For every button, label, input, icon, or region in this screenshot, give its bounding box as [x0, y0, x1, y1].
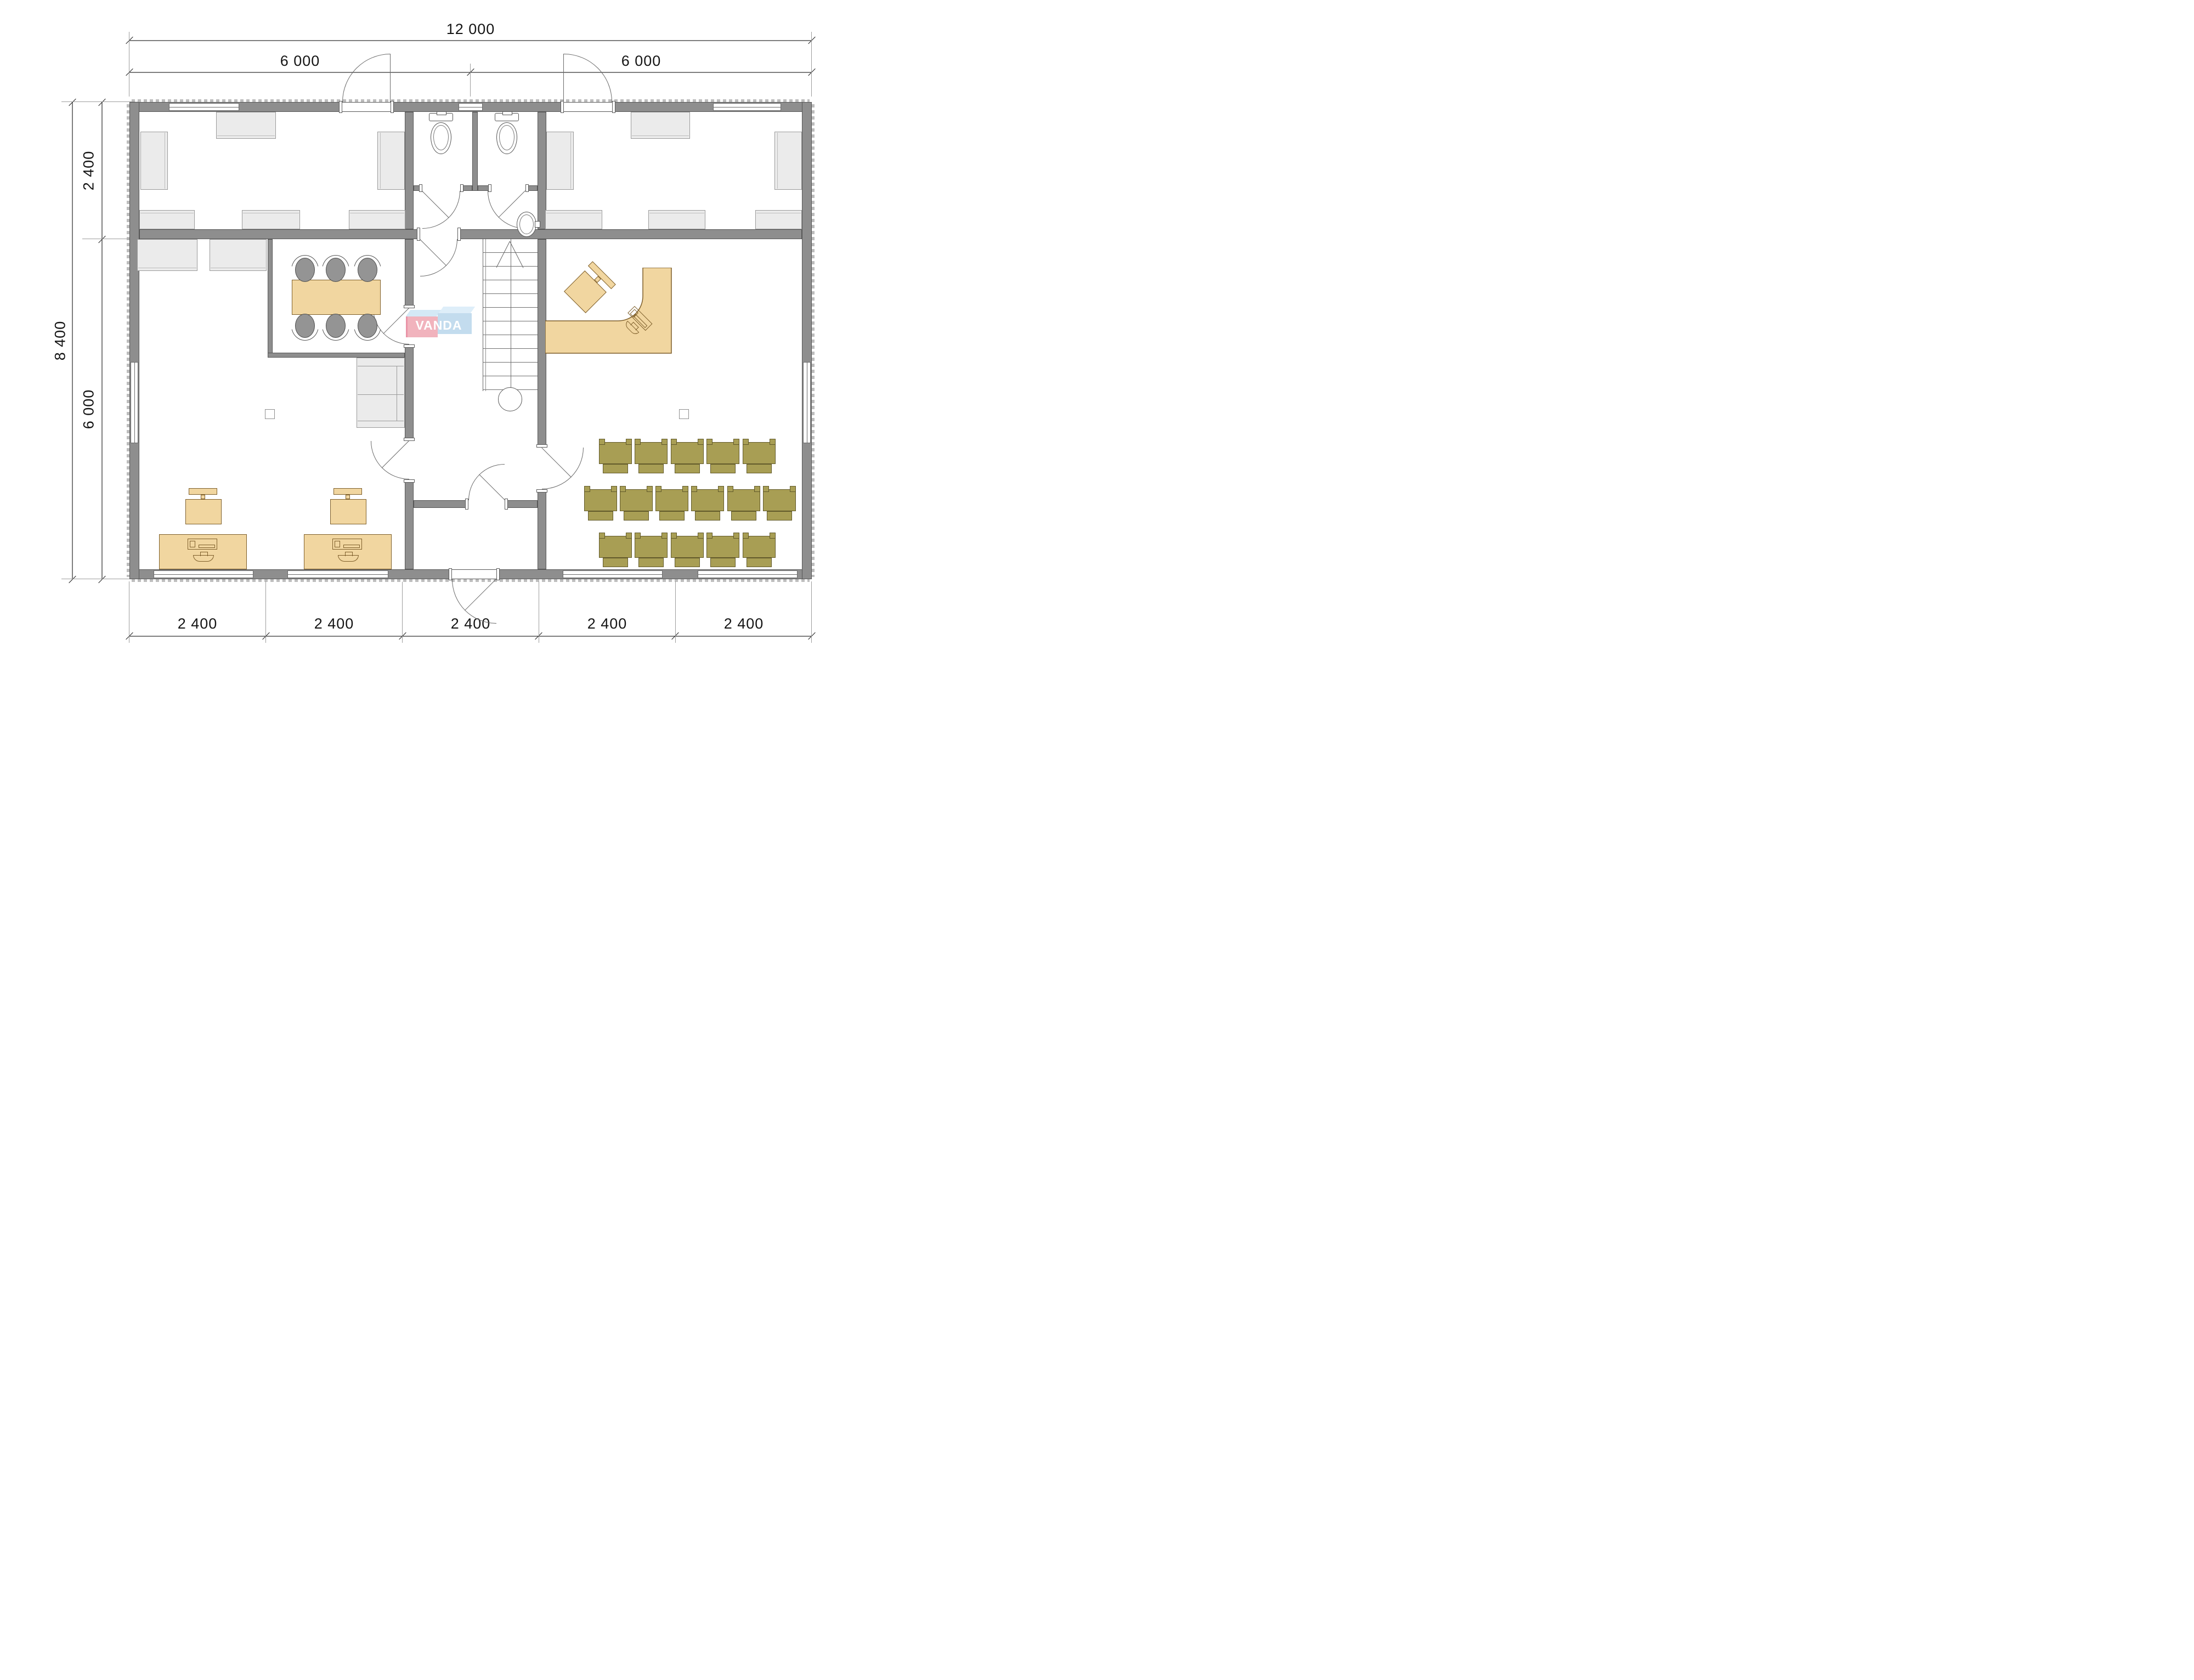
dimension-line-left-total: [72, 102, 73, 579]
meeting-chair: [355, 257, 380, 283]
door-jamb: [404, 479, 415, 483]
dimension-label-top-total: 12 000: [446, 21, 495, 38]
dimension-line-bottom: [129, 636, 812, 637]
extension-line: [265, 581, 266, 643]
meeting-room-wall-left: [268, 239, 273, 358]
door-jamb: [460, 184, 463, 192]
theater-seat: [743, 533, 776, 567]
extension-line: [129, 581, 129, 643]
dimension-line-top-total: [129, 40, 812, 41]
door-jamb: [449, 568, 452, 580]
dimension-label-left-total: 8 400: [52, 321, 69, 361]
desk-chair-seat: [330, 499, 366, 524]
theater-seat: [599, 439, 632, 473]
cabinet: [137, 239, 197, 271]
corridor-wall-left-b: [405, 344, 414, 441]
vanda-logo: VANDA: [405, 309, 473, 338]
theater-seat: [599, 533, 632, 567]
door-opening-top-left: [342, 103, 391, 111]
door-opening-top-right: [564, 103, 612, 111]
window-top-right: [713, 103, 781, 111]
extension-line: [61, 101, 138, 102]
theater-seat: [584, 487, 617, 521]
theater-seat: [727, 487, 760, 521]
extension-line: [129, 32, 129, 97]
cabinet: [140, 132, 168, 190]
counter-line: [358, 421, 404, 421]
theater-seat: [706, 439, 739, 473]
cabinet: [774, 132, 802, 190]
sink: [517, 212, 536, 237]
cabinet: [755, 210, 802, 229]
dimension-line-left-spans: [101, 102, 103, 579]
meeting-chair: [293, 313, 317, 339]
desk-chair-stem: [201, 495, 205, 499]
floor-symbol-right: [679, 409, 689, 419]
meeting-room-wall-bottom: [268, 353, 405, 358]
window-left-wall: [131, 362, 138, 443]
cabinet: [631, 112, 690, 139]
window-bottom-4: [698, 570, 798, 578]
floor-plan-canvas: 12 000 6 000 6 000 8 400 2 400 6 000 2 4…: [0, 0, 878, 672]
door-jamb: [391, 101, 394, 113]
cabinet: [216, 112, 276, 139]
window-bottom-2: [287, 570, 388, 578]
door-jamb: [465, 499, 468, 510]
window-right-wall: [803, 362, 811, 443]
dimension-label-bottom-5: 2 400: [724, 615, 764, 632]
window-top-wc: [459, 103, 483, 111]
floor-symbol-left: [265, 409, 275, 419]
door-swing-top-right: [564, 54, 612, 102]
corridor-wall-right-b: [538, 489, 546, 569]
mouse-icon: [193, 555, 214, 562]
cabinet: [210, 239, 267, 271]
logo-box-top-face: [406, 310, 441, 316]
door-swing-top-left: [342, 54, 391, 102]
theater-seat: [671, 533, 704, 567]
interior-wall-mid-left: [139, 229, 420, 239]
logo-box-top-face: [439, 307, 475, 313]
desk-chair-backrest: [333, 488, 362, 495]
theater-seat: [691, 487, 724, 521]
meeting-chair: [355, 313, 380, 339]
door-jamb: [404, 344, 415, 348]
door-leaf: [390, 54, 391, 102]
vestibule-wall-b: [505, 500, 538, 508]
extension-line: [61, 579, 138, 579]
wc-divider-wall: [472, 112, 478, 191]
cabinet: [546, 132, 574, 190]
mouse-icon: [338, 555, 359, 562]
computer-icon: [188, 539, 217, 550]
door-jamb: [339, 101, 342, 113]
cabinet: [377, 132, 405, 190]
toilet-left: [427, 113, 455, 156]
theater-seat: [635, 439, 668, 473]
cabinet: [349, 210, 405, 229]
extension-line: [811, 32, 812, 97]
interior-wall-mid-right: [457, 229, 802, 239]
dimension-label-left-top: 2 400: [81, 151, 98, 191]
desk-chair-stem: [346, 495, 350, 499]
theater-seat: [763, 487, 796, 521]
logo-text: VANDA: [407, 318, 471, 333]
door-jamb: [536, 489, 547, 493]
door-jamb: [457, 228, 461, 241]
stair-start-symbol: [498, 387, 522, 411]
toilet-right: [493, 113, 521, 156]
computer-icon: [332, 539, 362, 550]
theater-seat: [635, 533, 668, 567]
dimension-label-left-bottom: 6 000: [81, 389, 98, 429]
cabinet: [648, 210, 705, 229]
dimension-label-top-right: 6 000: [621, 53, 661, 70]
desk-chair-backrest: [189, 488, 217, 495]
theater-seat: [743, 439, 776, 473]
dimension-label-bottom-1: 2 400: [178, 615, 218, 632]
counter-line: [397, 366, 397, 421]
window-bottom-1: [154, 570, 253, 578]
kitchenette-counter: [357, 358, 405, 428]
extension-line: [402, 581, 403, 643]
vestibule-wall-a: [414, 500, 468, 508]
theater-seat: [620, 487, 653, 521]
staircase: [483, 239, 538, 391]
door-swing-left-room: [371, 441, 409, 479]
meeting-chair: [324, 257, 348, 283]
door-jamb: [612, 101, 615, 113]
meeting-chair: [293, 257, 317, 283]
door-leaf: [563, 54, 564, 102]
extension-line: [811, 581, 812, 643]
door-jamb: [561, 101, 564, 113]
theater-seat: [655, 487, 688, 521]
exterior-wall-left: [129, 102, 139, 579]
cabinet: [139, 210, 195, 229]
meeting-chair: [324, 313, 348, 339]
door-jamb: [496, 568, 500, 580]
dimension-label-bottom-2: 2 400: [314, 615, 354, 632]
desk-chair-seat: [185, 499, 222, 524]
window-top-left: [169, 103, 239, 111]
theater-seat: [706, 533, 739, 567]
dimension-label-top-left: 6 000: [280, 53, 320, 70]
dimension-label-bottom-4: 2 400: [587, 615, 627, 632]
extension-line: [675, 581, 676, 643]
corridor-wall-left-upper: [405, 112, 414, 229]
cabinet: [545, 210, 602, 229]
exterior-wall-right: [802, 102, 812, 579]
corridor-wall-left-c: [405, 479, 414, 569]
cladding-right: [812, 104, 815, 577]
extension-line: [470, 64, 471, 97]
extension-line: [539, 581, 539, 643]
conference-table: [292, 280, 381, 315]
window-bottom-3: [563, 570, 663, 578]
corridor-wall-left-a: [405, 239, 414, 308]
theater-seat: [671, 439, 704, 473]
door-jamb: [505, 499, 508, 510]
door-jamb: [525, 184, 529, 192]
door-opening-entry: [452, 570, 496, 579]
cabinet: [242, 210, 300, 229]
